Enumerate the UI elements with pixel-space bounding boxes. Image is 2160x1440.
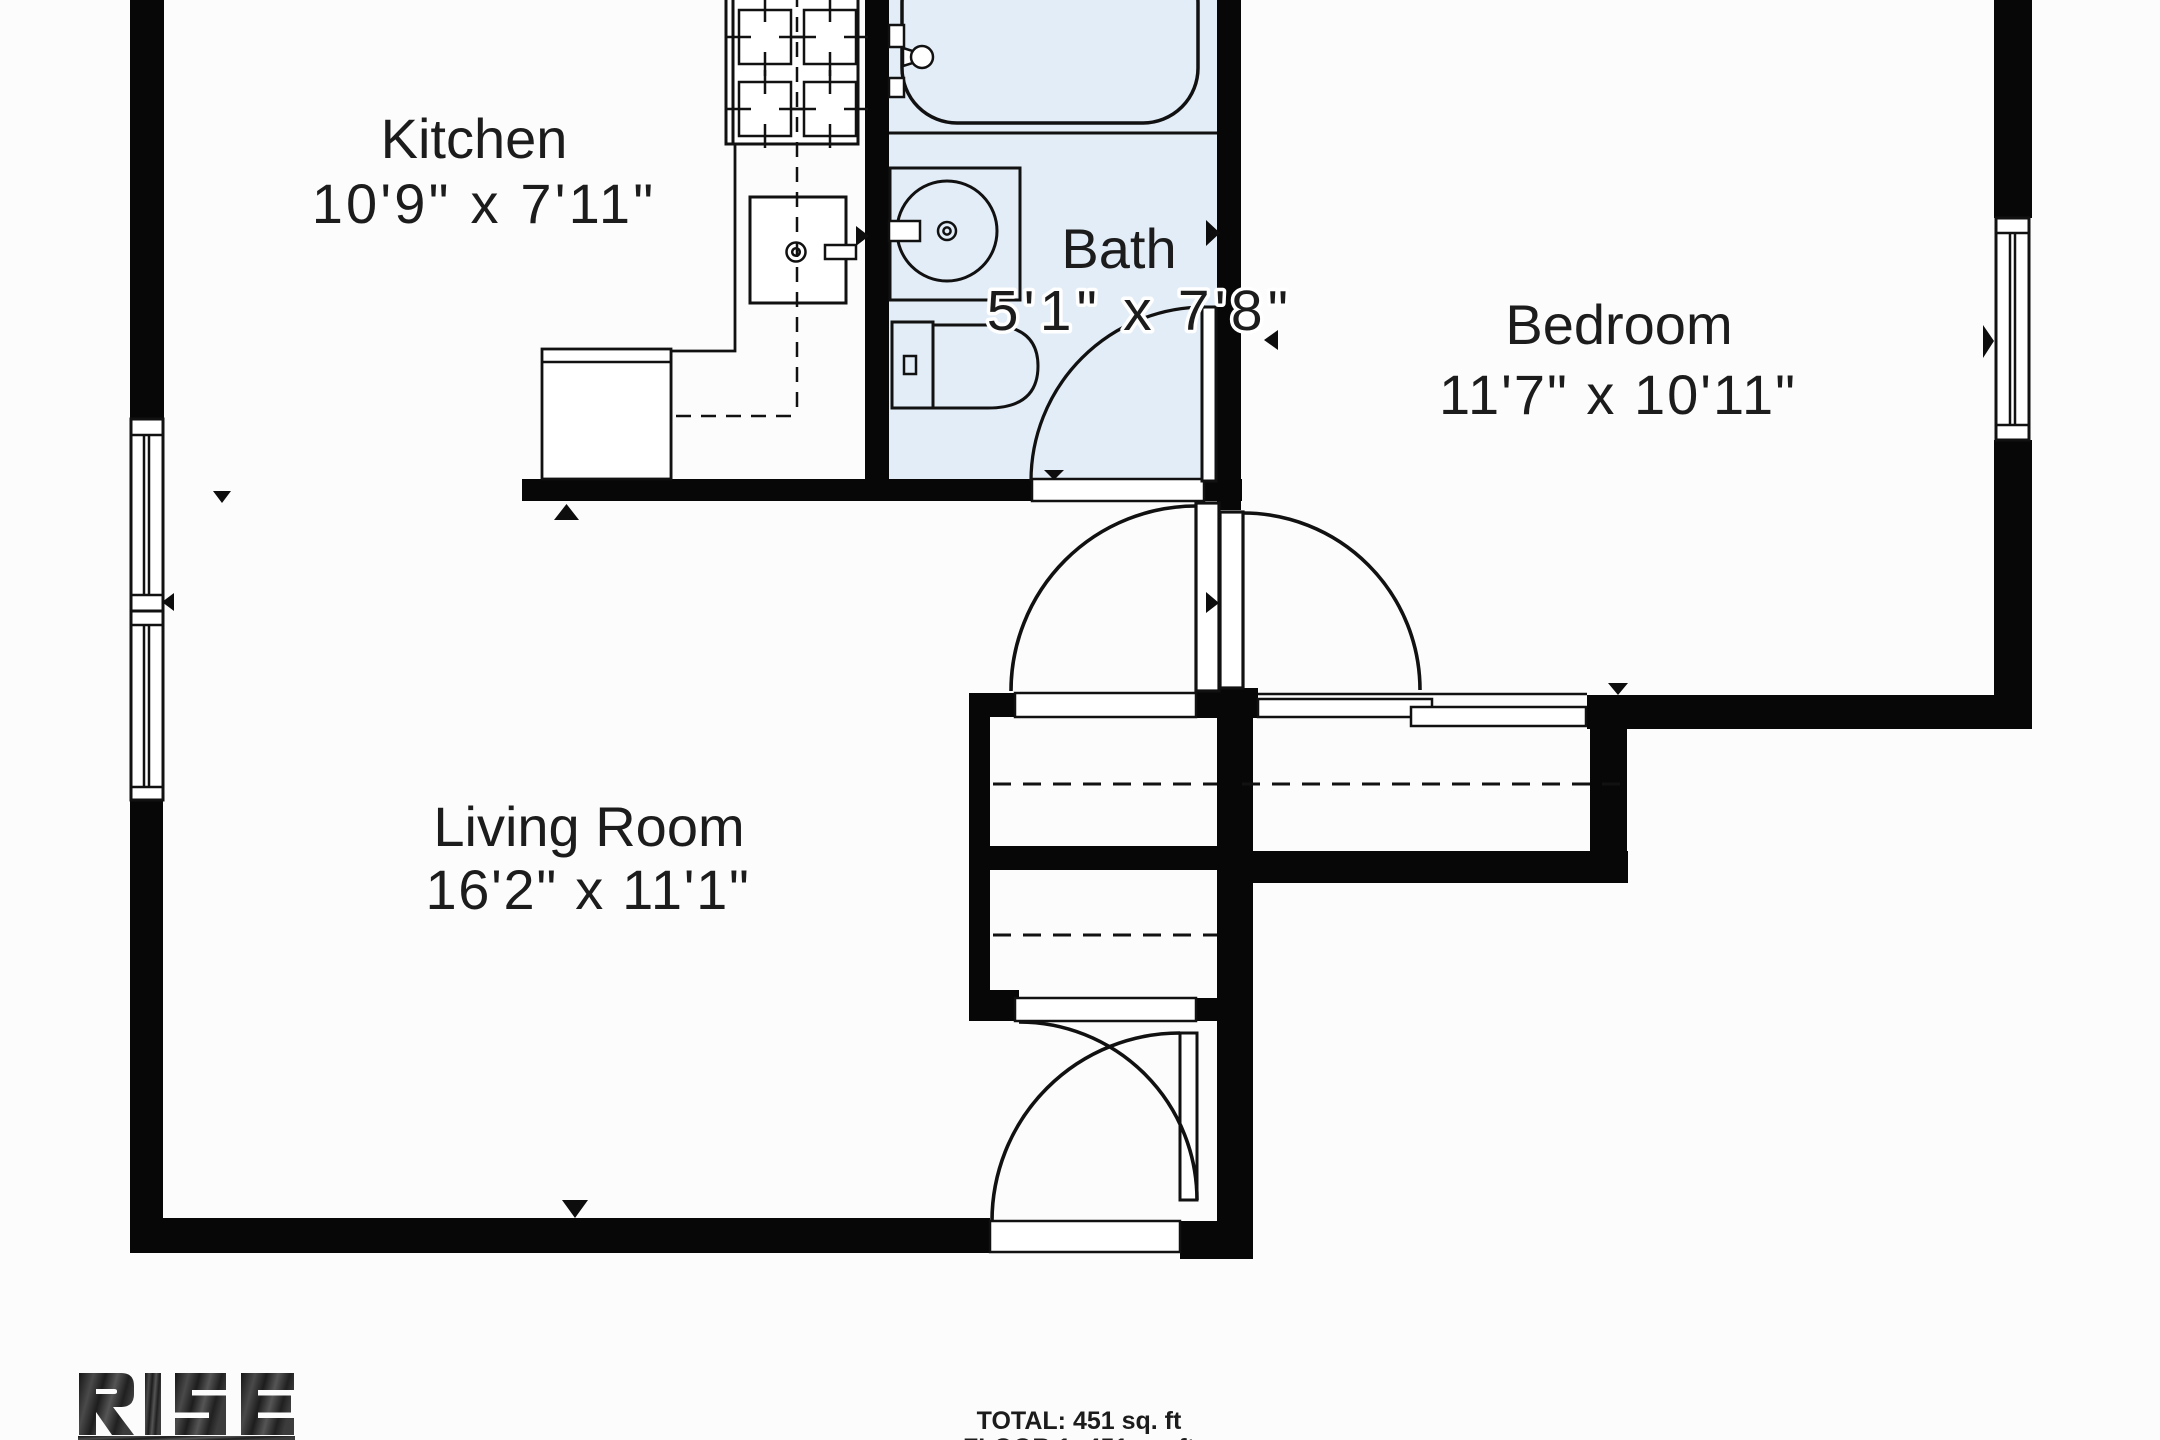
svg-text:16'2" x 11'1": 16'2" x 11'1" bbox=[425, 858, 750, 921]
svg-text:5'1" x 7'8": 5'1" x 7'8" bbox=[987, 279, 1293, 343]
svg-text:TOTAL: 451 sq. ft: TOTAL: 451 sq. ft bbox=[977, 1407, 1182, 1435]
svg-text:11'7" x 10'11": 11'7" x 10'11" bbox=[1439, 363, 1797, 426]
svg-text:Kitchen: Kitchen bbox=[381, 107, 568, 170]
svg-text:10'9" x 7'11": 10'9" x 7'11" bbox=[312, 172, 657, 235]
svg-text:Bedroom: Bedroom bbox=[1505, 293, 1732, 356]
svg-text:Living Room: Living Room bbox=[433, 795, 744, 858]
svg-text:Bath: Bath bbox=[1061, 217, 1176, 280]
svg-text:FLOOR 1: 451 sq. ft: FLOOR 1: 451 sq. ft bbox=[963, 1434, 1196, 1440]
